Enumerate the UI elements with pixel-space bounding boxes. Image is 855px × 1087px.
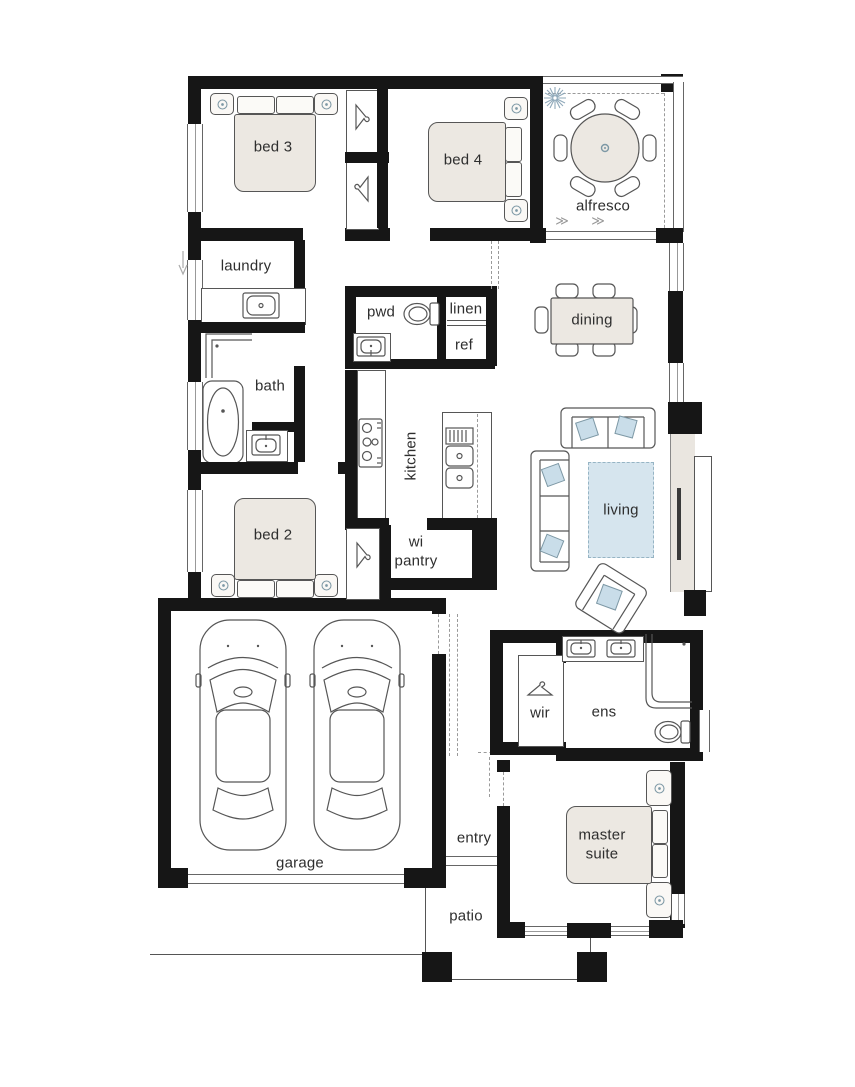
- window: [187, 382, 203, 450]
- floor-plan: ≫ ≫: [0, 0, 855, 1087]
- pillow: [276, 96, 314, 114]
- wall: [497, 760, 510, 772]
- garage-door: [188, 874, 404, 884]
- pillow: [505, 127, 522, 162]
- vanity-basin-icon: [606, 639, 636, 658]
- pillow: [652, 844, 668, 878]
- wall: [567, 923, 611, 938]
- wall: [497, 806, 510, 928]
- room-label-garage: garage: [276, 855, 324, 874]
- downlight-icon: [646, 882, 672, 918]
- linen-shelf: [447, 325, 486, 326]
- wall: [656, 228, 683, 243]
- laundry-sink-icon: [242, 292, 280, 319]
- pillow: [237, 96, 275, 114]
- sliding-door: [546, 231, 656, 240]
- car-icon: [196, 616, 404, 854]
- room-label-master: master suite: [567, 826, 637, 864]
- wall: [530, 89, 543, 228]
- window: [187, 490, 203, 572]
- wall: [188, 572, 201, 600]
- wall: [158, 598, 446, 611]
- starburst-icon: [543, 86, 567, 110]
- wall: [668, 402, 702, 434]
- wall: [345, 462, 357, 518]
- downlight-icon: [314, 574, 338, 597]
- bench-overhang-dashed: [477, 414, 478, 518]
- wall: [684, 590, 706, 616]
- vanity-basin-icon: [251, 434, 281, 456]
- room-label-ref: ref: [455, 337, 473, 356]
- wall: [490, 630, 503, 755]
- wall: [430, 228, 543, 241]
- downlight-icon: [210, 93, 234, 115]
- shower-icon: [644, 634, 692, 712]
- vanity-basin-icon: [356, 336, 386, 357]
- wall: [432, 654, 446, 872]
- wall: [188, 76, 543, 89]
- window: [611, 926, 649, 936]
- patio-line: [425, 888, 426, 954]
- window: [669, 363, 684, 403]
- toilet-icon: [652, 718, 694, 746]
- vanity-basin-icon: [566, 639, 596, 658]
- patio-line: [590, 938, 591, 952]
- sliding-door-arrow: ≫: [555, 213, 569, 229]
- pillow: [237, 580, 275, 598]
- opening-dashed: [438, 614, 439, 654]
- room-label-alfresco: alfresco: [576, 198, 630, 217]
- wardrobe-hanger-icon: [527, 678, 553, 700]
- room-label-entry: entry: [457, 830, 491, 849]
- room-label-ens: ens: [592, 704, 617, 723]
- window: [699, 710, 710, 752]
- downlight-icon: [211, 574, 235, 597]
- pillow: [505, 162, 522, 197]
- window: [187, 124, 203, 212]
- sofa: [560, 407, 656, 449]
- ceiling-dashed-line: [449, 614, 450, 756]
- wardrobe-hanger-icon: [349, 178, 375, 200]
- wall: [388, 578, 472, 590]
- tv-icon: [677, 488, 681, 560]
- wall: [188, 228, 303, 241]
- ceiling-dashed-line: [498, 241, 499, 289]
- patio-post: [422, 952, 452, 982]
- room-label-wipantry: wi pantry: [388, 533, 444, 571]
- patio-line: [150, 954, 423, 955]
- room-label-patio: patio: [449, 908, 483, 927]
- pillow: [652, 810, 668, 844]
- room-label-bed2: bed 2: [254, 527, 293, 546]
- room-label-pwd: pwd: [367, 304, 395, 323]
- wardrobe-hanger-icon: [350, 544, 376, 566]
- wall: [432, 850, 446, 872]
- wall: [668, 291, 683, 363]
- wall: [188, 76, 201, 124]
- wall: [530, 228, 546, 243]
- tv-unit: [694, 456, 712, 592]
- sofa: [530, 450, 570, 572]
- room-label-kitchen: kitchen: [403, 432, 422, 481]
- armchair: [568, 560, 652, 640]
- wall: [345, 286, 497, 297]
- downlight-icon: [504, 97, 528, 120]
- alfresco-edge: [543, 76, 683, 84]
- wall: [338, 462, 345, 474]
- linen-shelf: [447, 320, 486, 321]
- room-label-wir: wir: [530, 705, 550, 724]
- ceiling-dashed-line: [489, 757, 490, 797]
- room-label-bath: bath: [255, 378, 285, 397]
- opening-dashed: [503, 772, 504, 806]
- wardrobe: [518, 655, 564, 747]
- window: [525, 926, 567, 936]
- wall: [377, 89, 388, 228]
- entry-door: [446, 856, 497, 866]
- patio-line: [452, 979, 577, 980]
- shower-icon: [200, 332, 254, 380]
- window: [669, 243, 684, 291]
- wall: [294, 366, 305, 462]
- wall: [158, 868, 188, 888]
- room-label-living: living: [603, 502, 638, 521]
- wall: [556, 748, 703, 761]
- wall: [649, 920, 683, 938]
- media-niche: [670, 434, 695, 592]
- downlight-icon: [314, 93, 338, 115]
- pillow: [276, 580, 314, 598]
- wardrobe-hanger-icon: [349, 106, 375, 128]
- ceiling-dashed-line: [491, 241, 492, 289]
- wall: [497, 922, 525, 938]
- room-label-laundry: laundry: [221, 258, 272, 277]
- roof-dashed-line: [664, 93, 665, 233]
- wall: [158, 598, 171, 888]
- bathtub-icon: [202, 380, 244, 464]
- alfresco-edge: [673, 82, 684, 232]
- drain-arrow-icon: [177, 250, 189, 276]
- downlight-icon: [646, 770, 672, 806]
- toilet-icon: [401, 300, 443, 328]
- room-label-bed3: bed 3: [254, 139, 293, 158]
- patio-post: [577, 952, 607, 982]
- room-label-linen: linen: [450, 301, 483, 320]
- room-label-dining: dining: [571, 312, 612, 331]
- wall: [432, 598, 446, 614]
- wall: [188, 462, 298, 474]
- sink-icon: [446, 428, 473, 488]
- room-label-bed4: bed 4: [444, 152, 483, 171]
- ceiling-dashed-line: [457, 614, 458, 756]
- wall: [486, 286, 497, 366]
- cooktop-icon: [358, 418, 383, 468]
- wall: [472, 518, 497, 590]
- downlight-icon: [504, 199, 528, 222]
